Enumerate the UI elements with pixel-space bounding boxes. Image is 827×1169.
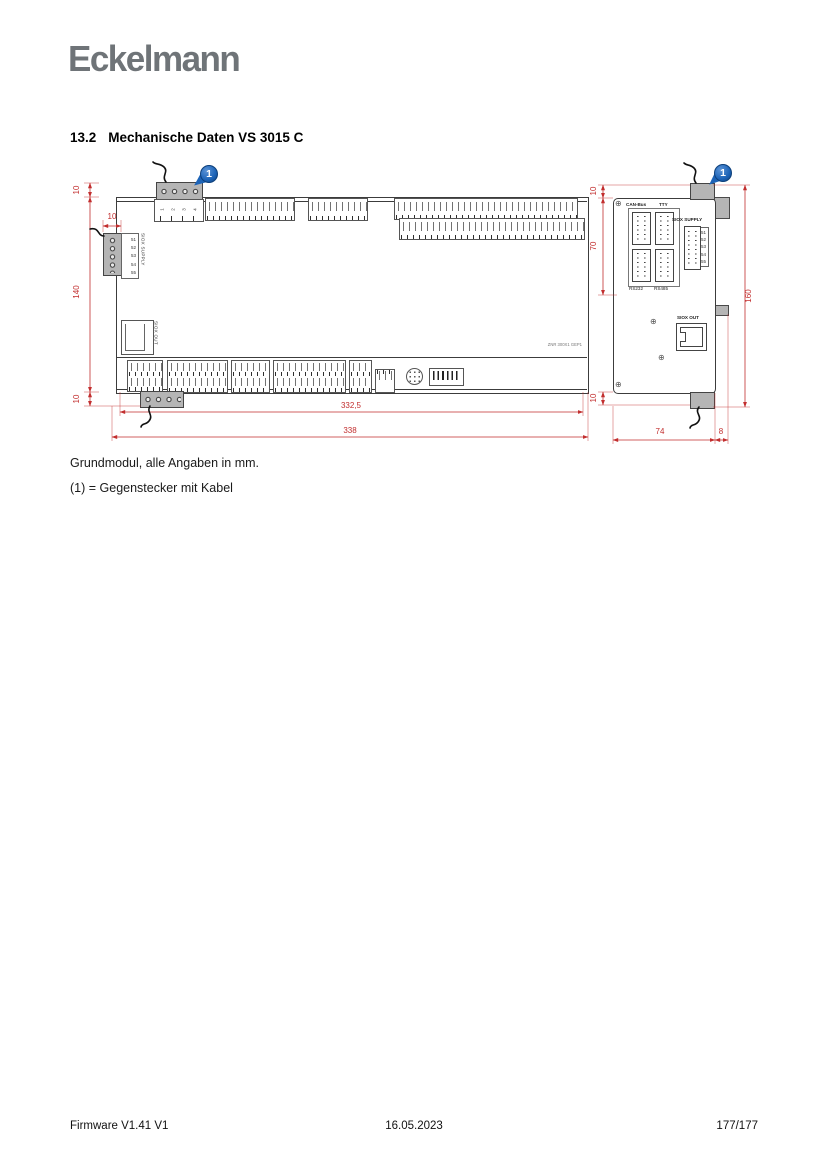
terminal-strip — [273, 360, 346, 393]
dip-switch — [429, 368, 464, 386]
caption-line-1: Grundmodul, alle Angaben in mm. — [70, 456, 259, 470]
screw-icon: ⊕ — [658, 354, 665, 362]
board-reference-text: ZNR 300X1 GEP1 — [510, 342, 582, 347]
terminal-strip — [349, 360, 372, 393]
side-mating-connector-top — [690, 183, 715, 200]
technical-drawing: 1 2 3 4 51 52 53 54 55 SIOX SUPPLY SIOX … — [0, 160, 827, 455]
terminal-strip — [308, 198, 368, 221]
terminal-pin-label: 3 — [182, 207, 187, 213]
rs485-label: RS485 — [654, 286, 668, 291]
dim-side-top-offset: 10 — [588, 181, 600, 201]
callout-leader-lines — [196, 176, 719, 184]
section-number: 13.2 — [70, 130, 96, 145]
pin-label: 55 — [131, 270, 136, 275]
siox-supply-pin-labels: 51 52 53 54 55 — [121, 233, 139, 279]
siox-out-port-inner — [680, 327, 703, 347]
pin-label: 55 — [701, 259, 706, 264]
pin-label: 52 — [701, 237, 706, 242]
dim-front-height: 140 — [71, 277, 83, 307]
tty-label: TTY — [659, 202, 668, 207]
terminal-strip — [167, 360, 228, 393]
dim-front-bottom-offset: 10 — [71, 389, 83, 409]
dim-side-bottom-offset: 10 — [588, 388, 600, 408]
siox-supply-label-side: SIOX SUPPLY — [672, 217, 702, 222]
pin-label: 53 — [131, 253, 136, 258]
caption-line-2: (1) = Gegenstecker mit Kabel — [70, 481, 233, 495]
dim-front-top-offset: 10 — [71, 180, 83, 200]
callout-1-badge-front: 1 — [200, 165, 218, 183]
terminal-strip — [205, 198, 295, 221]
terminal-strip — [375, 369, 395, 393]
dim-side-upper-section: 70 — [588, 231, 600, 261]
footer-page-number: 177/177 — [443, 1120, 758, 1132]
screw-icon: ⊕ — [615, 200, 622, 208]
section-heading: 13.2Mechanische Daten VS 3015 C — [70, 130, 303, 145]
dim-front-width-inner: 332,5 — [311, 400, 391, 412]
dim-front-width-outer: 338 — [310, 425, 390, 437]
terminal-strip — [231, 360, 270, 393]
dim-front-supply-conn: 10 — [102, 211, 122, 223]
canbus-label: CAN-Bus — [626, 202, 646, 207]
siox-supply-connector-side — [684, 226, 701, 270]
siox-out-label-front: SIOX OUT — [153, 321, 158, 353]
rotary-switch — [406, 368, 423, 385]
terminal-strip — [127, 360, 163, 392]
footer-date: 16.05.2023 — [385, 1120, 443, 1132]
document-page: Eckelmann 13.2Mechanische Daten VS 3015 … — [0, 0, 827, 1169]
terminal-strip — [394, 198, 578, 220]
section-title: Mechanische Daten VS 3015 C — [108, 130, 303, 145]
terminal-pin-label: 2 — [171, 207, 176, 213]
canbus-connector — [632, 212, 651, 245]
mating-connector-bottom — [140, 391, 184, 408]
siox-out-label-side: SIOX OUT — [677, 315, 699, 320]
callout-1-badge-side: 1 — [714, 164, 732, 182]
terminal-pin-label: 4 — [193, 207, 198, 213]
rs232-connector — [632, 249, 651, 282]
pin-label: 51 — [131, 237, 136, 242]
dim-side-tab-depth: 8 — [711, 426, 731, 438]
page-footer: Firmware V1.41 V1 16.05.2023 177/177 — [70, 1120, 758, 1132]
pin-label: 53 — [701, 244, 706, 249]
pin-label: 54 — [701, 252, 706, 257]
rs485-connector — [655, 249, 674, 282]
siox-supply-plug — [103, 233, 122, 276]
rs232-label: RS232 — [629, 286, 643, 291]
terminal-strip — [399, 218, 585, 240]
power-terminal-block: 1 2 3 4 — [154, 199, 204, 222]
screw-icon: ⊕ — [650, 318, 657, 326]
siox-out-port — [676, 323, 707, 351]
front-bottom-rail-line — [116, 357, 587, 358]
pin-label: 51 — [701, 230, 706, 235]
siox-out-box-front — [121, 320, 154, 355]
dim-side-total-height: 160 — [743, 281, 755, 311]
screw-icon: ⊕ — [615, 381, 622, 389]
siox-supply-label-front: SIOX SUPPLY — [140, 233, 145, 281]
footer-firmware: Firmware V1.41 V1 — [70, 1120, 385, 1132]
pin-label: 54 — [131, 262, 136, 267]
side-mating-connector-bottom — [690, 392, 715, 409]
company-logo: Eckelmann — [68, 40, 239, 81]
dim-side-body-width: 74 — [630, 426, 690, 438]
terminal-pin-label: 1 — [160, 207, 165, 213]
pin-label: 52 — [131, 245, 136, 250]
